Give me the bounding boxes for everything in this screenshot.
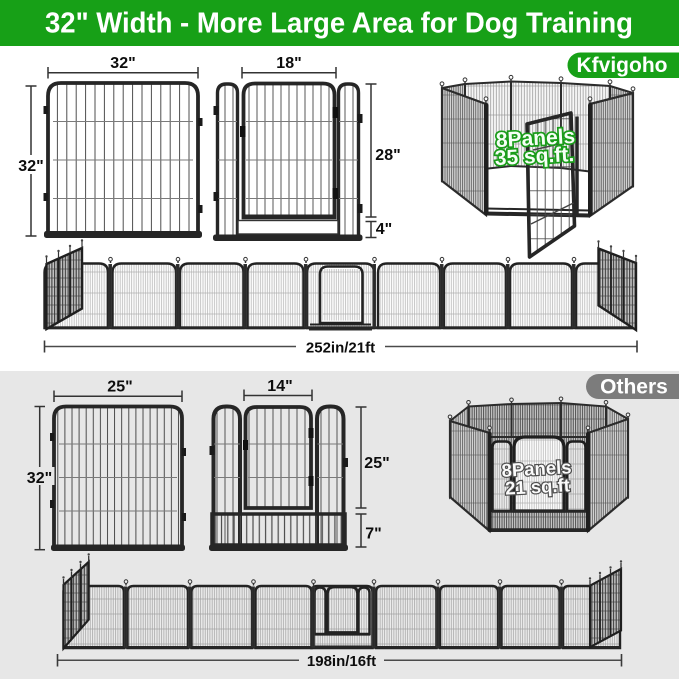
svg-text:32": 32" (110, 55, 135, 72)
svg-text:252in/21ft: 252in/21ft (306, 340, 375, 357)
svg-text:32" Width - More Large Area fo: 32" Width - More Large Area for Dog Trai… (45, 8, 633, 40)
svg-text:21 sq.ft: 21 sq.ft (505, 474, 571, 498)
svg-text:25": 25" (107, 379, 132, 396)
svg-text:25": 25" (364, 455, 389, 472)
svg-text:32": 32" (18, 158, 43, 175)
svg-text:Kfvigoho: Kfvigoho (577, 54, 668, 77)
svg-text:198in/16ft: 198in/16ft (307, 653, 376, 670)
svg-text:18": 18" (276, 55, 301, 72)
svg-text:28": 28" (375, 147, 400, 164)
svg-text:14": 14" (267, 378, 292, 395)
svg-text:35 sq.ft.: 35 sq.ft. (494, 143, 574, 170)
svg-text:7": 7" (365, 526, 381, 543)
svg-text:4": 4" (376, 221, 392, 238)
svg-text:32": 32" (27, 470, 52, 487)
svg-text:Others: Others (600, 376, 668, 399)
